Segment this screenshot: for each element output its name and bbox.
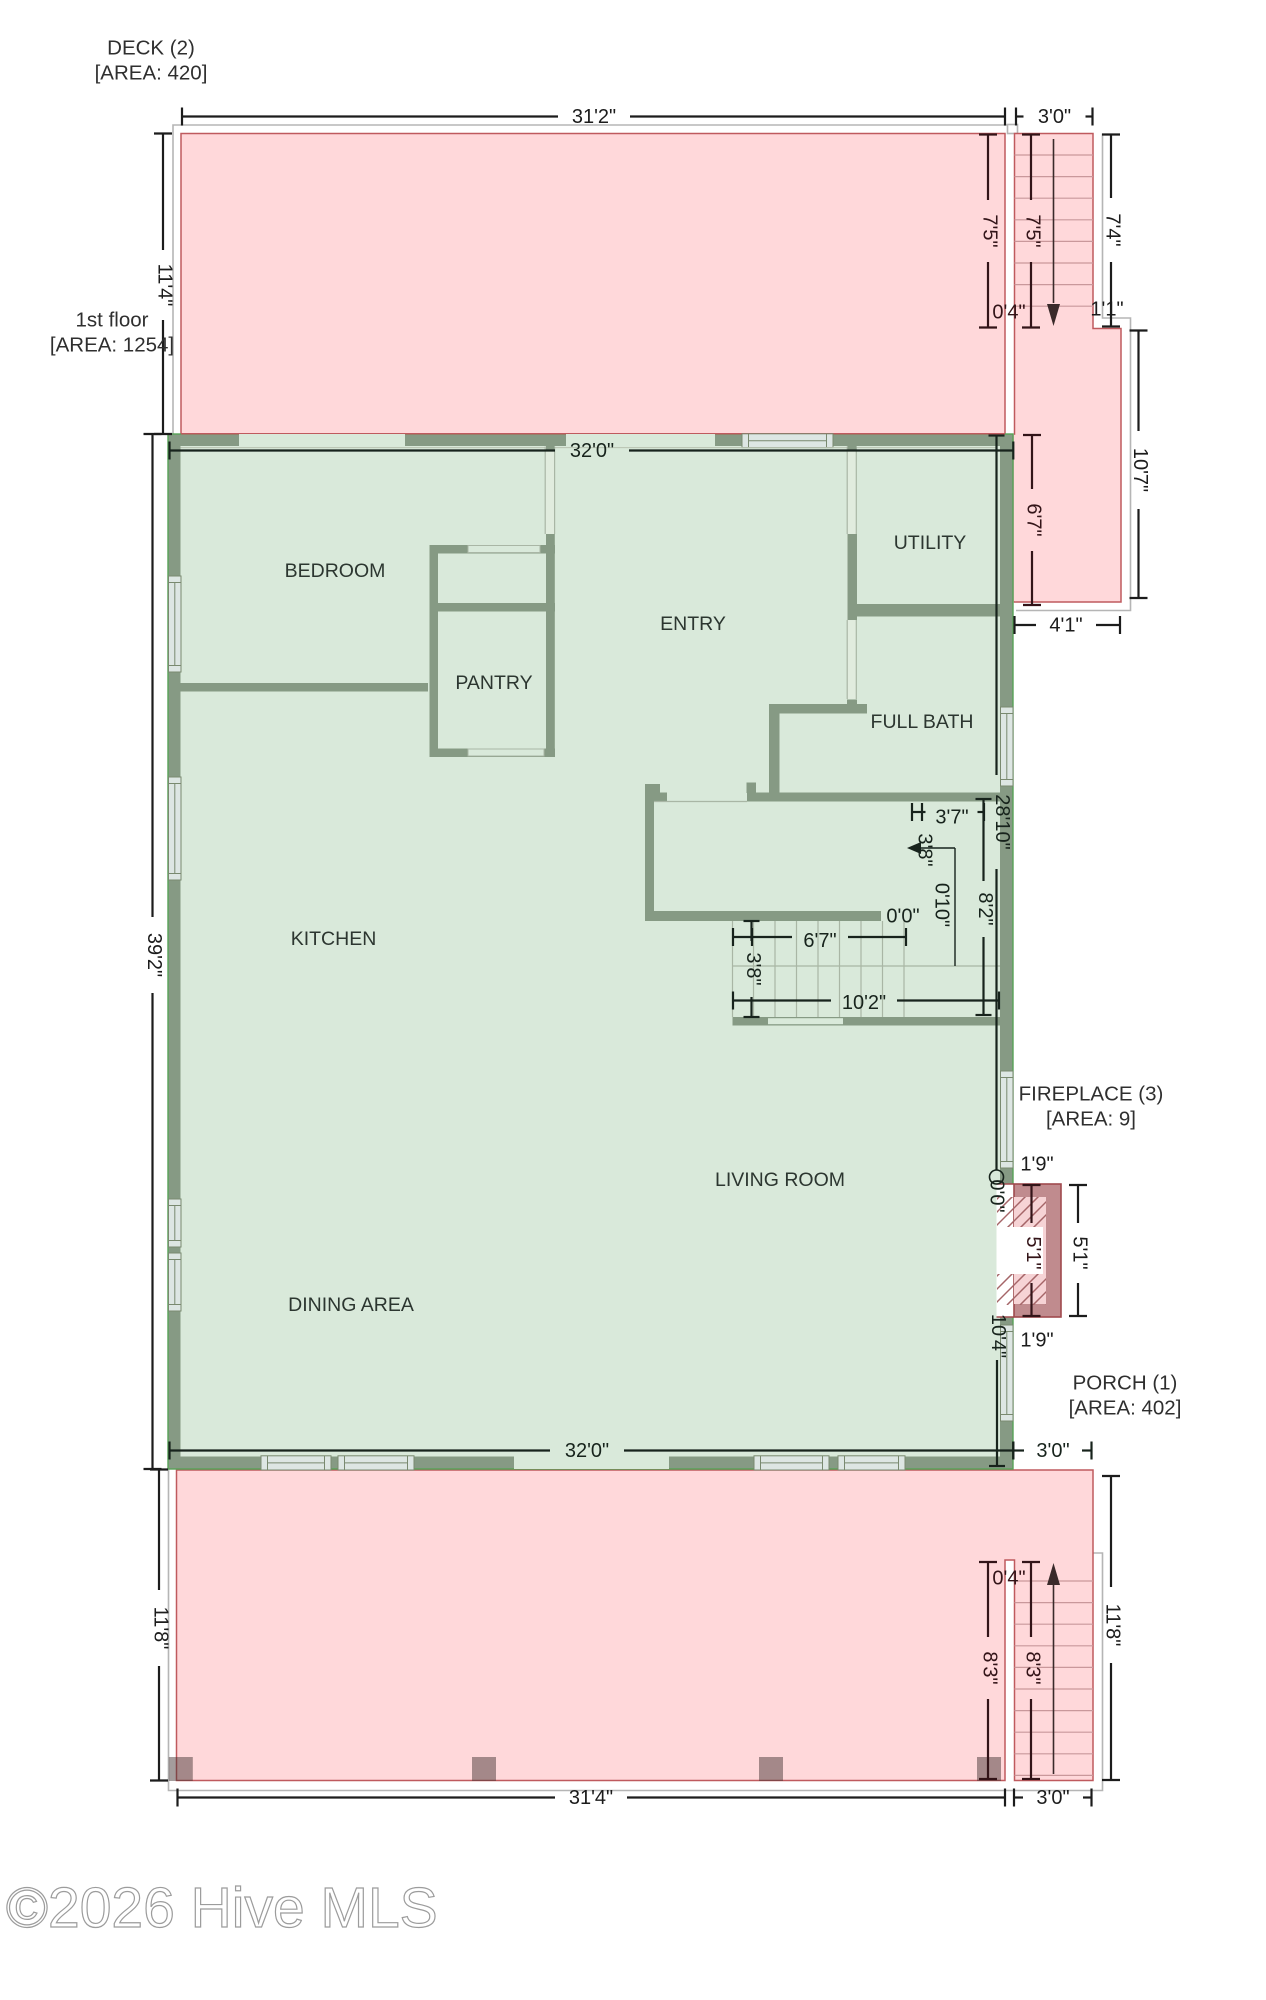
svg-text:3'7": 3'7" (935, 806, 968, 828)
svg-text:[AREA: 1254]: [AREA: 1254] (50, 333, 174, 356)
svg-text:LIVING ROOM: LIVING ROOM (715, 1169, 845, 1191)
svg-text:[AREA: 402]: [AREA: 402] (1069, 1396, 1182, 1419)
svg-text:FULL BATH: FULL BATH (871, 711, 974, 733)
svg-text:0'10": 0'10" (931, 883, 953, 927)
svg-text:1'9": 1'9" (1020, 1153, 1053, 1175)
svg-text:1'9": 1'9" (1020, 1329, 1053, 1351)
svg-text:DINING AREA: DINING AREA (288, 1294, 414, 1316)
svg-text:11'8": 11'8" (1102, 1604, 1124, 1647)
svg-text:8'3": 8'3" (979, 1651, 1001, 1684)
svg-text:4'1": 4'1" (1049, 614, 1082, 636)
svg-text:BEDROOM: BEDROOM (285, 560, 386, 582)
svg-text:39'2": 39'2" (143, 933, 165, 977)
svg-text:10'2": 10'2" (842, 992, 886, 1014)
svg-text:1'1": 1'1" (1090, 298, 1123, 320)
svg-text:6'7": 6'7" (803, 930, 836, 952)
svg-text:1st floor: 1st floor (76, 308, 149, 331)
svg-text:3'0": 3'0" (1036, 1440, 1069, 1462)
svg-text:©2026 Hive MLS: ©2026 Hive MLS (6, 1876, 438, 1940)
svg-text:FIREPLACE (3): FIREPLACE (3) (1019, 1082, 1164, 1105)
svg-text:8'2": 8'2" (974, 892, 996, 925)
svg-text:10'7": 10'7" (1129, 448, 1151, 492)
svg-text:7'5": 7'5" (979, 214, 1001, 247)
svg-text:0'4": 0'4" (992, 301, 1025, 323)
svg-text:10'4": 10'4" (987, 1314, 1009, 1358)
svg-text:PANTRY: PANTRY (455, 672, 532, 694)
svg-text:11'4": 11'4" (154, 264, 176, 307)
svg-text:0'0": 0'0" (886, 905, 919, 927)
svg-text:[AREA: 9]: [AREA: 9] (1046, 1107, 1136, 1130)
svg-text:0'4": 0'4" (992, 1567, 1025, 1589)
svg-text:11'8": 11'8" (150, 1607, 172, 1650)
svg-text:UTILITY: UTILITY (894, 532, 967, 554)
svg-text:3'8": 3'8" (742, 952, 764, 985)
svg-text:KITCHEN: KITCHEN (291, 928, 377, 950)
svg-text:7'5": 7'5" (1022, 214, 1044, 247)
svg-text:[AREA: 420]: [AREA: 420] (95, 61, 208, 84)
svg-text:3'0": 3'0" (1036, 1787, 1069, 1809)
svg-text:6'7": 6'7" (1023, 503, 1045, 536)
svg-text:31'4": 31'4" (569, 1787, 613, 1809)
svg-text:DECK (2): DECK (2) (107, 36, 195, 59)
svg-text:3'0": 3'0" (1038, 106, 1071, 128)
svg-text:32'0": 32'0" (570, 440, 614, 462)
svg-text:28'10": 28'10" (991, 794, 1013, 849)
svg-text:7'4": 7'4" (1102, 213, 1124, 246)
svg-text:0'0": 0'0" (986, 1179, 1008, 1212)
svg-text:3'8": 3'8" (914, 833, 936, 866)
svg-text:32'0": 32'0" (565, 1440, 609, 1462)
svg-text:5'1": 5'1" (1069, 1236, 1091, 1269)
svg-text:8'3": 8'3" (1022, 1651, 1044, 1684)
svg-text:31'2": 31'2" (572, 106, 616, 128)
svg-text:ENTRY: ENTRY (660, 613, 726, 635)
svg-text:PORCH (1): PORCH (1) (1073, 1371, 1178, 1394)
svg-text:5'1": 5'1" (1022, 1236, 1044, 1269)
